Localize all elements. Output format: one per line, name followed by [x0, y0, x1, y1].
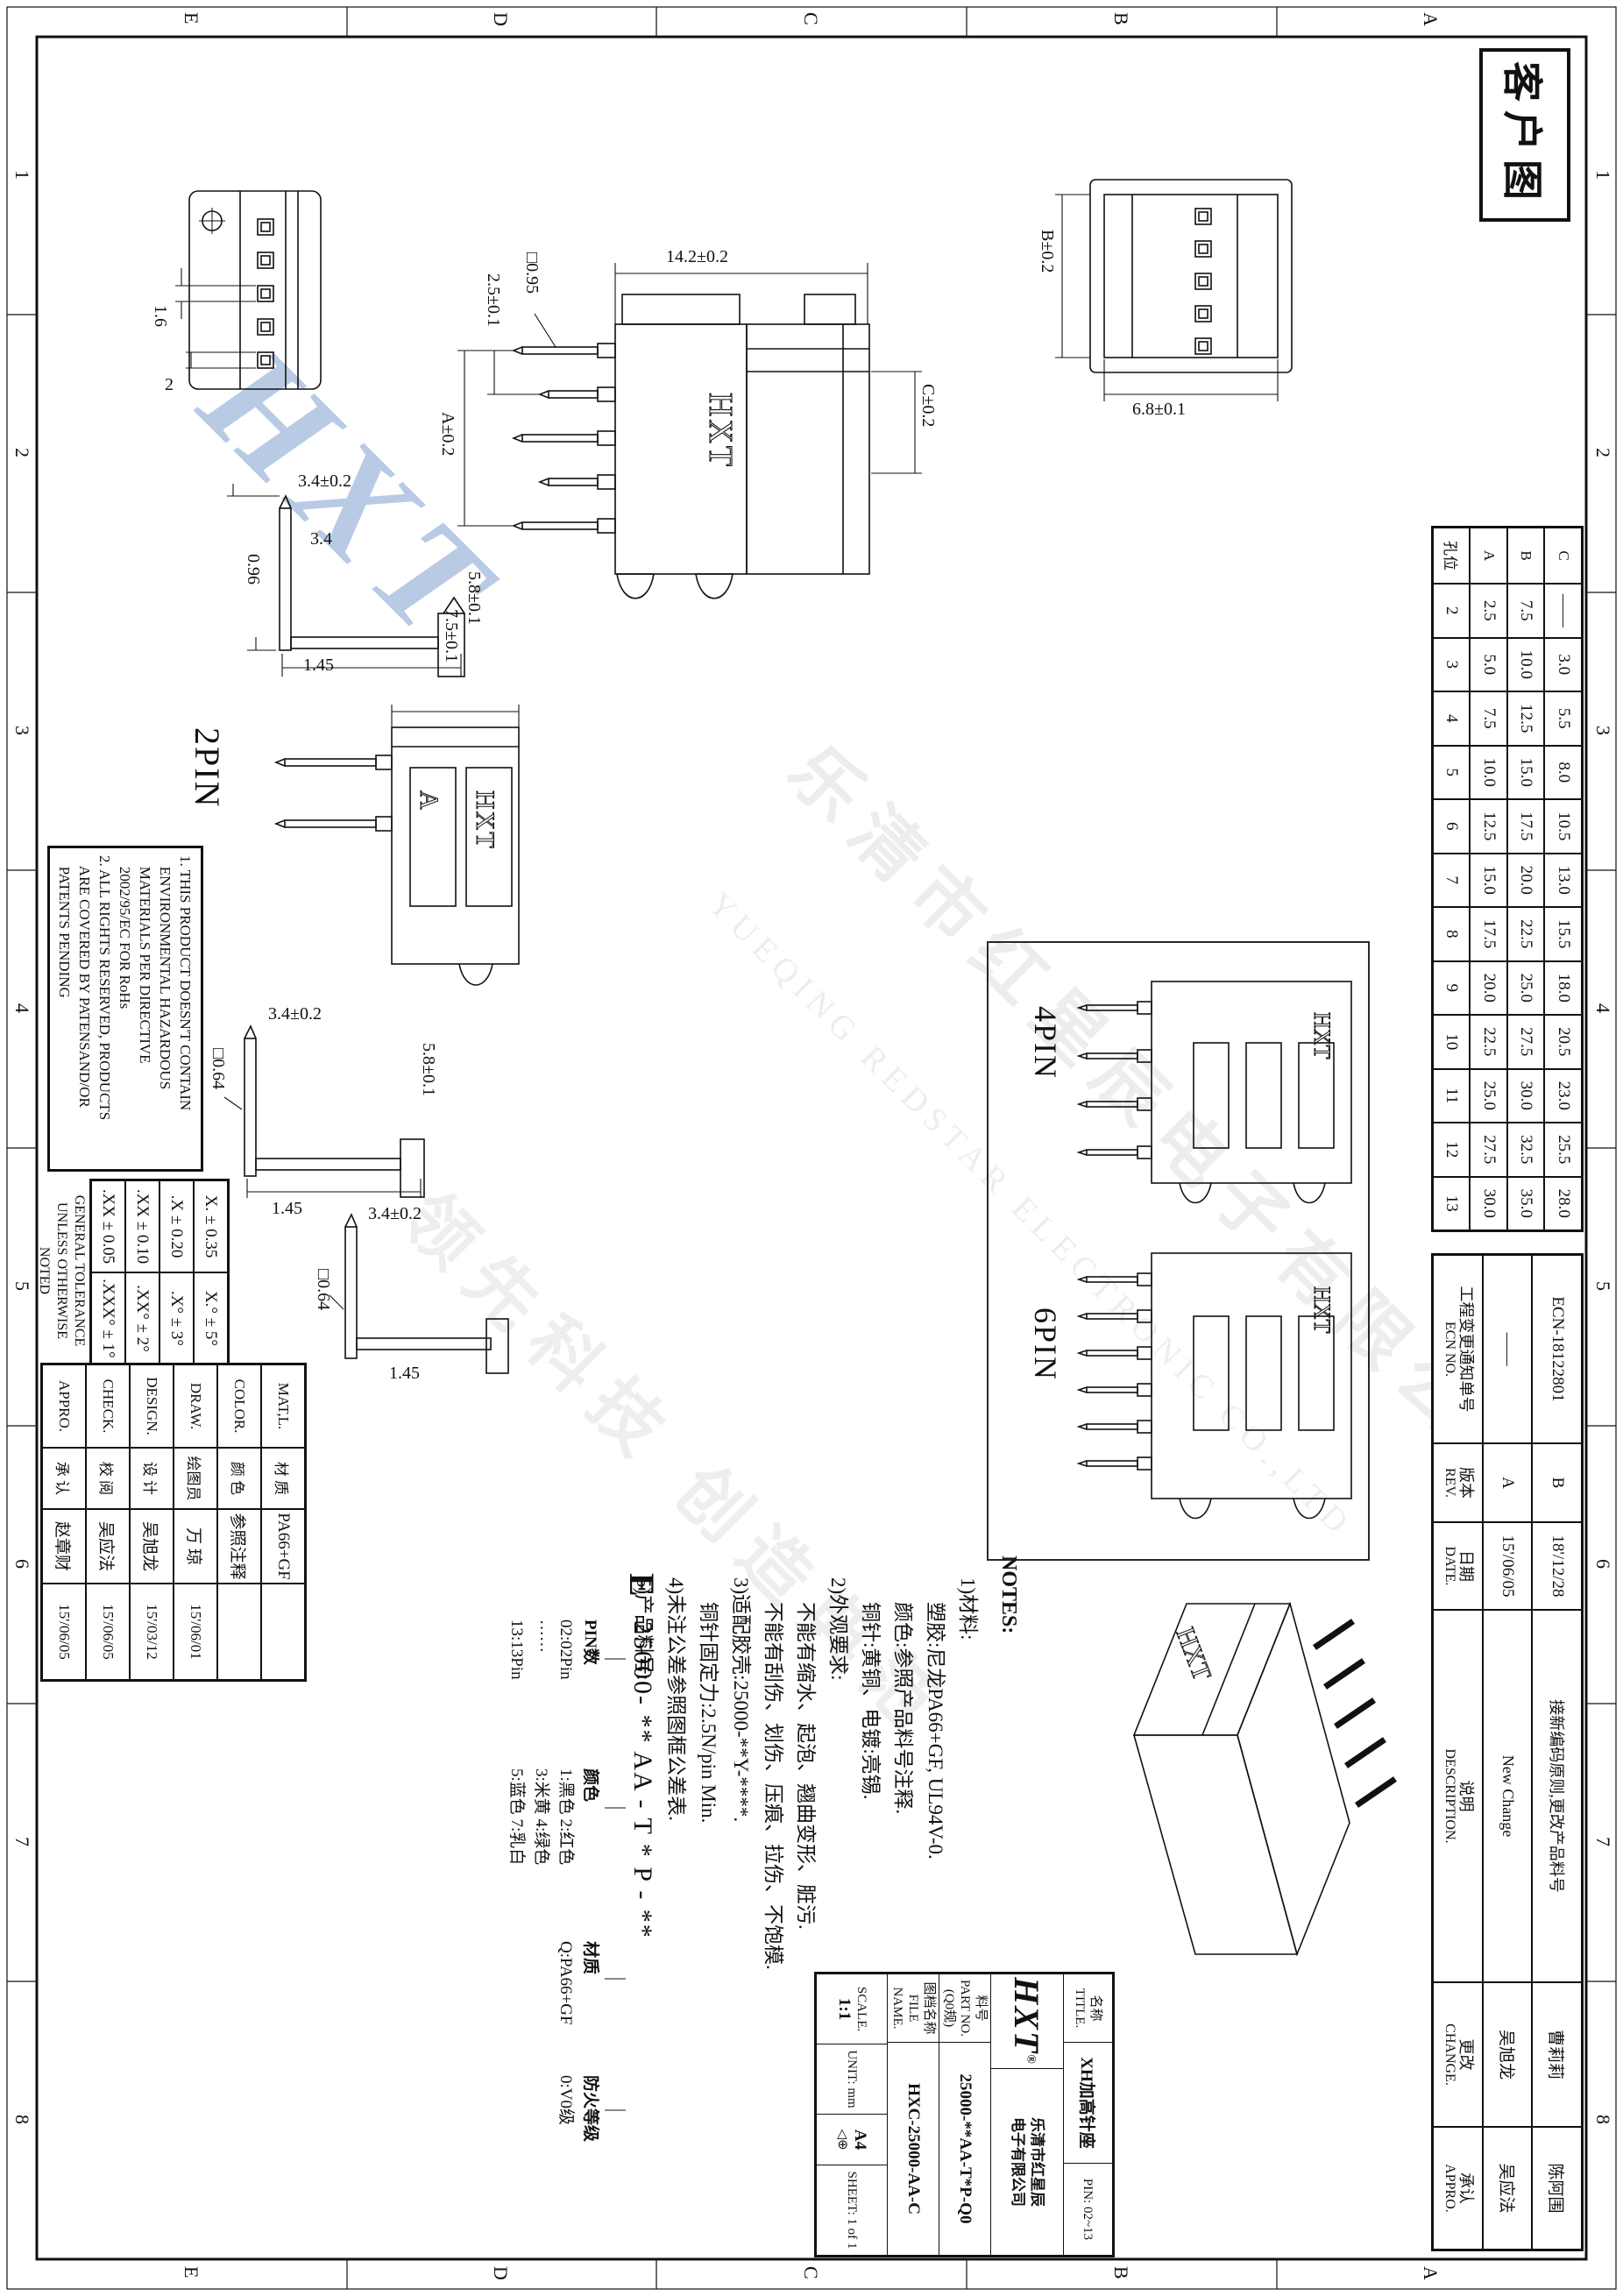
pin-table-cell: 12.5: [1471, 799, 1508, 854]
titleblock-value: 赵章财: [42, 1509, 86, 1584]
ecn-cell: ECN-18122801: [1532, 1255, 1582, 1443]
legend-group: PIN数02:02Pin······13:13Pin: [504, 1619, 602, 1680]
dim-label: 6.8±0.1: [1132, 400, 1186, 420]
titleblock-date: [261, 1584, 305, 1680]
logo-text: HXT: [1008, 1977, 1047, 2054]
pin-table-cell: 30.0: [1471, 1177, 1508, 1231]
zone-number: 8: [11, 2115, 33, 2124]
front-view: [175, 191, 321, 389]
ecn-cell: 18'/12/28: [1532, 1522, 1582, 1610]
dim-label: C±0.2: [918, 384, 938, 427]
legend-group: 颜色1:黑色 2:红色3:米黄 4:绿色5:蓝色 7:乳白: [504, 1768, 602, 1865]
legend-item: ······: [528, 1619, 553, 1680]
ecn-cell: 陈阿围: [1532, 2127, 1582, 2250]
zone-letter: B: [1109, 12, 1132, 25]
note-line: 不能有刮伤、划伤、压痕、拉伤、不饱模.: [761, 1602, 790, 1970]
ecn-header-cell: 日期DATE.: [1433, 1522, 1483, 1610]
pin-table-cell: 25.0: [1471, 1069, 1508, 1123]
ecn-cell: ——: [1483, 1255, 1533, 1443]
part-no-value: 25000-**AA-T*P-Q0: [939, 2043, 990, 2255]
pin-table-cell: 8.0: [1545, 746, 1583, 800]
dim-label: 5.8±0.1: [464, 571, 484, 625]
disclaimer-line: ENVIRONMENTAL HAZARDOUS: [155, 855, 175, 1162]
paper-size: A4: [850, 2129, 869, 2150]
notes-title: NOTES:: [996, 1555, 1020, 1633]
disclaimer-box: 1. THIS PRODUCT DOESN'T CONTAIN ENVIRONM…: [47, 846, 203, 1172]
svg-text:HXT: HXT: [1309, 1012, 1335, 1059]
pin-table-cell: 15.0: [1507, 746, 1545, 800]
legend-item: 13:13Pin: [504, 1619, 528, 1680]
pin-table-cell: 18.0: [1545, 961, 1583, 1016]
pin-table-cell: 27.5: [1471, 1123, 1508, 1177]
pin-table-cell: 30.0: [1507, 1069, 1545, 1123]
pin-table-cell: 13.0: [1545, 854, 1583, 908]
titleblock-label-zh: 颜 色: [217, 1448, 261, 1509]
zone-number: 6: [1591, 1559, 1614, 1569]
scale-label: SCALE.: [854, 1987, 869, 2031]
dim-label: 5.8±0.1: [418, 1043, 438, 1096]
view-label-6pin: 6PIN: [1027, 1307, 1064, 1381]
company-name: 乐清市红星辰 电子有限公司: [991, 2069, 1063, 2255]
dim-label: □0.64: [208, 1048, 228, 1089]
pin-table-cell: ——: [1545, 584, 1583, 638]
info-block: 名称 TITLE. XH加高针座 PIN: 02~13 HXT® 乐清市红星辰 …: [814, 1972, 1115, 2257]
note-line: 铜针:黄铜、电镀:亮锡.: [858, 1602, 888, 1800]
dim-label: 14.2±0.2: [666, 247, 728, 267]
legend-item: 1:黑色 2:红色: [553, 1768, 578, 1865]
legend-title: PIN数: [578, 1619, 602, 1680]
legend-title: 材质: [578, 1941, 602, 2025]
pin-table-cell: 10: [1433, 1015, 1471, 1069]
pin-table-cell: 6: [1433, 799, 1471, 854]
ecn-header-en: ECN NO.: [1442, 1322, 1457, 1377]
zone-letter: C: [799, 12, 822, 25]
zone-number: 2: [11, 448, 33, 457]
tolerance-note-line2: UNLESS OTHERWISE NOTED: [37, 1202, 69, 1339]
pin-table-cell: 35.0: [1507, 1177, 1545, 1231]
legend-title: 防火等级: [578, 2075, 602, 2142]
customer-drawing-stamp: 客户图: [1479, 48, 1570, 222]
titleblock-label-zh: 材 质: [261, 1448, 305, 1509]
tolerance-note: GENERAL TOLERANCE UNLESS OTHERWISE NOTED: [35, 1179, 88, 1363]
pin-profile-3: [330, 1215, 508, 1373]
pin-table-cell: 17.5: [1507, 799, 1545, 854]
titleblock-label-en: COLOR.: [217, 1364, 261, 1448]
ecn-header-en: CHANGE.: [1442, 2023, 1457, 2086]
pin-table-cell: 5.5: [1545, 691, 1583, 746]
pin-table-header-cell: 孔位: [1433, 528, 1471, 584]
ecn-header-zh: 工程变更通知单号: [1457, 1286, 1475, 1413]
pin-table-cell: 7.5: [1507, 584, 1545, 638]
dim-label: B±0.2: [1037, 230, 1057, 273]
titleblock-label-en: APPRO.: [42, 1364, 86, 1448]
pin-dimension-table: C——3.05.58.010.513.015.518.020.523.025.5…: [1431, 526, 1584, 1232]
svg-text:HXT: HXT: [1309, 1286, 1335, 1334]
pin-table-cell: 32.5: [1507, 1123, 1545, 1177]
part-number-pattern: 25000- ** AA - T * P - **: [627, 1621, 657, 1939]
drawing-lineart: HXT: [0, 0, 1623, 2296]
dim-label: 7.5±0.1: [441, 609, 461, 663]
dim-label: 1.45: [303, 655, 334, 676]
titleblock-date: 15'/06/01: [174, 1584, 217, 1680]
tolerance-table: X. ± 0.35X.° ± 5°.X ± 0.20.X° ± 3°.XX ± …: [89, 1179, 230, 1366]
zone-number: 4: [1591, 1003, 1614, 1013]
ecn-header-en: REV.: [1442, 1468, 1457, 1498]
note-line: 4)未注公差参照图框公差表.: [663, 1577, 693, 1821]
tolerance-linear-cell: .X ± 0.20: [159, 1180, 194, 1272]
titleblock-label-zh: 绘图员: [174, 1448, 217, 1509]
company-line2: 电子有限公司: [1008, 2117, 1027, 2207]
ecn-cell: 吴旭龙: [1483, 1982, 1533, 2127]
zone-letter: E: [180, 2266, 202, 2278]
file-name-value: HXC-25000-AA-C: [888, 2043, 939, 2255]
disclaimer-line: PATENTS PENDING: [54, 855, 74, 1162]
ecn-revision-table: ECN-18122801B18'/12/28接新编码原则,更改产品料号曹莉莉陈阿…: [1431, 1253, 1584, 2251]
svg-text:HXT: HXT: [471, 790, 500, 850]
svg-text:HXT: HXT: [1170, 1624, 1216, 1684]
legend-item: 5:蓝色 7:乳白: [504, 1768, 528, 1865]
zone-letter: D: [489, 2266, 512, 2280]
zone-number: 6: [11, 1559, 33, 1569]
legend-item: Q:PA66+GF: [553, 1941, 578, 2025]
projection-symbol-icon: ◁⊕: [834, 2129, 850, 2150]
pin-table-cell: 15.0: [1471, 854, 1508, 908]
dim-label: 1.45: [389, 1364, 420, 1384]
section-view: HXT: [457, 263, 922, 599]
pin-table-cell: 11: [1433, 1069, 1471, 1123]
titleblock-value: 参照注释: [217, 1509, 261, 1584]
disclaimer-line: MATERIALS PER DIRECTIVE: [135, 855, 155, 1162]
scale-value: 1:1: [834, 1998, 854, 2020]
ecn-header-cell: 工程变更通知单号ECN NO.: [1433, 1255, 1483, 1443]
titleblock-date: [217, 1584, 261, 1680]
titleblock-label-zh: 设 计: [130, 1448, 174, 1509]
part-label-zh: 料号: [973, 1995, 989, 2021]
part-no-label: 料号 PART NO. (Q0规): [939, 1974, 990, 2043]
unit-cell: UNIT: mm: [817, 2044, 887, 2115]
note-line: 1)材料:: [955, 1577, 985, 1641]
ecn-cell: 接新编码原则,更改产品料号: [1532, 1610, 1582, 1982]
note-line: 铜针固定力:2.5N/pin Min.: [696, 1602, 726, 1823]
titleblock-label-zh: 校 阅: [86, 1448, 130, 1509]
dim-label: 3.4±0.2: [298, 471, 351, 492]
ecn-header-cell: 说明DESCRIPTION.: [1433, 1610, 1483, 1982]
dim-label: □0.64: [313, 1269, 333, 1310]
zone-mark-e: E: [621, 1573, 663, 1597]
pin-table-cell: 12.5: [1507, 691, 1545, 746]
legend-leaders: [605, 1659, 626, 2110]
ecn-cell: B: [1532, 1443, 1582, 1522]
dim-label: □0.95: [521, 252, 542, 294]
pin-table-cell: 3.0: [1545, 638, 1583, 692]
tolerance-angular-cell: X.° ± 5°: [194, 1272, 228, 1364]
pin-table-cell: 25.0: [1507, 961, 1545, 1016]
legend-group: 材质Q:PA66+GF: [553, 1941, 602, 2025]
zone-number: 7: [11, 1837, 33, 1846]
title-value: XH加高针座: [1064, 2043, 1112, 2164]
dim-label: 0.96: [243, 554, 263, 585]
disclaimer-line: 2. ALL RIGHTS RESERVED, PRODUCTS: [95, 855, 115, 1162]
titleblock-label-en: MAT,L.: [261, 1364, 305, 1448]
zone-letter: E: [180, 12, 202, 24]
pin-table-cell: 25.5: [1545, 1123, 1583, 1177]
view-label-4pin: 4PIN: [1027, 1006, 1064, 1080]
zone-number: 2: [1591, 448, 1614, 457]
ecn-cell: 吴应法: [1483, 2127, 1533, 2250]
disclaimer-line: 2002/95/EC FOR RoHs: [115, 855, 135, 1162]
zone-number: 1: [1591, 170, 1614, 180]
registered-mark: ®: [1024, 2054, 1038, 2065]
titleblock-label-en: DRAW.: [174, 1364, 217, 1448]
drawing-sheet: HXT: [0, 0, 1623, 2296]
pin-table-header-cell: A: [1471, 528, 1508, 584]
tolerance-angular-cell: .XX° ± 2°: [125, 1272, 159, 1364]
pin-range: PIN: 02~13: [1064, 2164, 1112, 2255]
pin-table-cell: 22.5: [1507, 907, 1545, 961]
pin-table-cell: 20.0: [1471, 961, 1508, 1016]
pin-table-cell: 3: [1433, 638, 1471, 692]
titleblock-label-en: CHECK.: [86, 1364, 130, 1448]
ecn-header-cell: 版本REV.: [1433, 1443, 1483, 1522]
title-label: 名称 TITLE.: [1064, 1974, 1112, 2043]
note-line: 颜色:参照产品料号注释.: [890, 1602, 920, 1814]
pin-table-cell: 17.5: [1471, 907, 1508, 961]
note-line: 不能有缩水、起泡、翘曲变形、脏污.: [793, 1602, 823, 1930]
dim-label: 1.6: [150, 305, 170, 327]
zone-letter: D: [489, 12, 512, 26]
titleblock-date: 15'/03/12: [130, 1584, 174, 1680]
ecn-header-zh: 更改: [1457, 2039, 1475, 2071]
company-line1: 乐清市红星辰: [1027, 2117, 1046, 2207]
ecn-header-cell: 更改CHANGE.: [1433, 1982, 1483, 2127]
pin-table-header-cell: C: [1545, 528, 1583, 584]
pin-table-cell: 7: [1433, 854, 1471, 908]
pin-table-cell: 8: [1433, 907, 1471, 961]
pin-table-cell: 10.5: [1545, 799, 1583, 854]
note-line: 塑胶:尼龙PA66+GF, UL94V-0.: [923, 1602, 953, 1860]
title-label-en: TITLE.: [1073, 1988, 1088, 2028]
note-line: 2)外观要求:: [826, 1577, 855, 1681]
pin-table-cell: 20.0: [1507, 854, 1545, 908]
file-name-label: 图档名称 FILE NAME.: [888, 1974, 939, 2043]
zone-letter: A: [1419, 2266, 1442, 2280]
titleblock-date: 15'/06/05: [42, 1584, 86, 1680]
pin-table-cell: 5.0: [1471, 638, 1508, 692]
ecn-header-cell: 承认APPRO.: [1433, 2127, 1483, 2250]
zone-number: 3: [11, 726, 33, 735]
pin-table-cell: 9: [1433, 961, 1471, 1016]
zone-number: 5: [11, 1281, 33, 1291]
ecn-cell: New Change: [1483, 1610, 1533, 1982]
two-pin-view: HXT A: [276, 705, 519, 985]
zone-letter: A: [1419, 12, 1442, 26]
zone-number: 7: [1591, 1837, 1614, 1846]
tolerance-angular-cell: .XXX° ± 1°: [91, 1272, 125, 1364]
tolerance-angular-cell: .X° ± 3°: [159, 1272, 194, 1364]
part-label-en: PART NO.: [957, 1980, 973, 2037]
pin-table-cell: 10.0: [1471, 746, 1508, 800]
pin-table-cell: 23.0: [1545, 1069, 1583, 1123]
pin-table-cell: 10.0: [1507, 638, 1545, 692]
ecn-header-en: DATE.: [1442, 1547, 1457, 1586]
pin-table-cell: 2.5: [1471, 584, 1508, 638]
dim-label: 1.45: [272, 1199, 302, 1219]
zone-number: 8: [1591, 2115, 1614, 2124]
file-label-en: FILE NAME.: [889, 1974, 921, 2042]
ecn-header-zh: 日期: [1457, 1550, 1475, 1582]
paper-size-cell: A4 ◁⊕: [817, 2115, 887, 2165]
zone-number: 1: [11, 170, 33, 180]
dim-label: 2: [165, 375, 174, 395]
ecn-header-zh: 承认: [1457, 2172, 1475, 2204]
ecn-cell: A: [1483, 1443, 1533, 1522]
zone-number: 4: [11, 1003, 33, 1013]
part-spec: (Q0规): [941, 1989, 957, 2027]
pin-table-cell: 13: [1433, 1177, 1471, 1231]
dim-label: 3.4: [310, 529, 332, 549]
zone-number: 3: [1591, 726, 1614, 735]
ecn-header-en: DESCRIPTION.: [1442, 1748, 1457, 1843]
titleblock-value: 吴旭龙: [130, 1509, 174, 1584]
dim-label: 3.4±0.2: [268, 1004, 322, 1024]
view-label-2pin: 2PIN: [187, 727, 228, 808]
zone-letter: B: [1109, 2266, 1132, 2279]
legend-title: 颜色: [578, 1768, 602, 1865]
pin-table-cell: 4: [1433, 691, 1471, 746]
pin-table-cell: 28.0: [1545, 1177, 1583, 1231]
titleblock-date: 15'/06/05: [86, 1584, 130, 1680]
pin-table-cell: 2: [1433, 584, 1471, 638]
dim-label: 2.5±0.1: [483, 273, 503, 327]
titleblock-label-en: DESIGN.: [130, 1364, 174, 1448]
title-label-zh: 名称: [1088, 1995, 1104, 2021]
pin-table-cell: 20.5: [1545, 1015, 1583, 1069]
file-label-zh: 图档名称: [921, 1981, 937, 2034]
ecn-cell: 曹莉莉: [1532, 1982, 1582, 2127]
dim-label: A±0.2: [437, 412, 457, 456]
titleblock-label-zh: 承 认: [42, 1448, 86, 1509]
pin-table-cell: 27.5: [1507, 1015, 1545, 1069]
pin-table-cell: 22.5: [1471, 1015, 1508, 1069]
titleblock-value: 万 琼: [174, 1509, 217, 1584]
disclaimer-line: 1. THIS PRODUCT DOESN'T CONTAIN: [175, 855, 195, 1162]
pin-table-cell: 7.5: [1471, 691, 1508, 746]
ecn-header-en: APPRO.: [1442, 2164, 1457, 2213]
pin-table-header-cell: B: [1507, 528, 1545, 584]
ecn-cell: 15'/06/05: [1483, 1522, 1533, 1610]
pin-profile-2: [224, 1026, 424, 1198]
pin-table-cell: 5: [1433, 746, 1471, 800]
ecn-header-zh: 版本: [1457, 1467, 1475, 1499]
tolerance-note-line1: GENERAL TOLERANCE: [72, 1195, 87, 1347]
back-view: [1055, 180, 1292, 401]
svg-text:A: A: [415, 790, 443, 810]
zone-number: 5: [1591, 1281, 1614, 1291]
tolerance-linear-cell: X. ± 0.35: [194, 1180, 228, 1272]
sheet-cell: SHEET: 1 of 1: [817, 2165, 887, 2255]
tolerance-linear-cell: .XX ± 0.10: [125, 1180, 159, 1272]
dim-label: 3.4±0.2: [368, 1204, 422, 1224]
legend-group: 防火等级0:V0级: [553, 2075, 602, 2142]
legend-item: 02:02Pin: [553, 1619, 578, 1680]
ecn-header-zh: 说明: [1457, 1781, 1475, 1812]
tolerance-linear-cell: .XX ± 0.05: [91, 1180, 125, 1272]
scale-cell: SCALE. 1:1: [817, 1974, 887, 2044]
titleblock-value: PA66+GF: [261, 1509, 305, 1584]
svg-text:HXT: HXT: [702, 393, 739, 469]
pin-table-cell: 15.5: [1545, 907, 1583, 961]
zone-letter: C: [799, 2266, 822, 2279]
disclaimer-line: ARE COVERED BY PATENSAND/OR: [74, 855, 95, 1162]
iso-view: HXT: [1134, 1604, 1395, 1954]
note-line: 3)适配胶壳:25000-**Y-****.: [728, 1577, 758, 1822]
legend-item: 0:V0级: [553, 2075, 578, 2142]
titleblock-value: 吴应法: [86, 1509, 130, 1584]
legend-item: 3:米黄 4:绿色: [528, 1768, 553, 1865]
company-logo: HXT®: [991, 1974, 1063, 2069]
titleblock-signatures: MAT,L.材 质PA66+GFCOLOR.颜 色参照注释DRAW.绘图员万 琼…: [40, 1363, 307, 1682]
pin-table-cell: 12: [1433, 1123, 1471, 1177]
